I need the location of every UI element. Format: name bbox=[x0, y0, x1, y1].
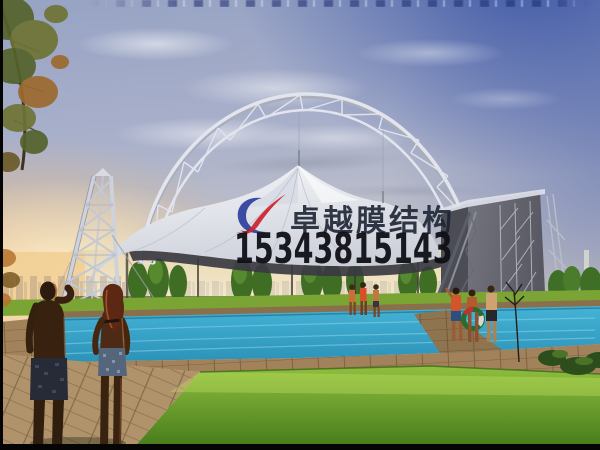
membrane-structure-rendering: 卓越膜结构 15343815143 bbox=[0, 0, 600, 450]
grounds bbox=[0, 282, 600, 450]
watermark-phone-number: 15343815143 bbox=[234, 224, 453, 273]
cropped-watermark-remnant bbox=[90, 0, 590, 7]
photo-edge-left bbox=[0, 0, 3, 450]
photo-edge-bottom bbox=[0, 444, 600, 450]
front-lawn bbox=[132, 366, 600, 450]
